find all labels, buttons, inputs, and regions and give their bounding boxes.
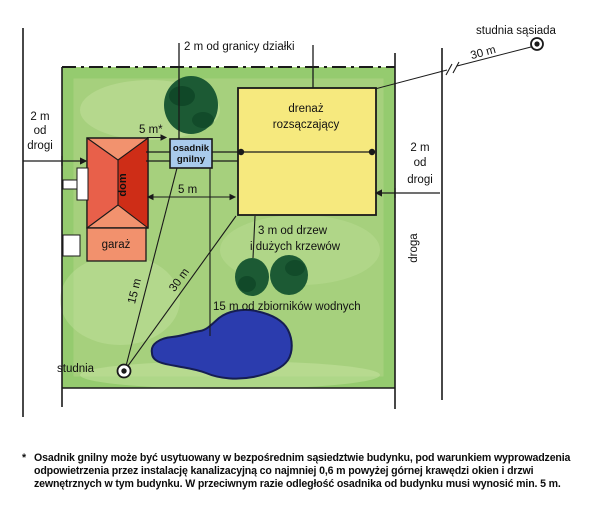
road-right-dist-line1: 2 m bbox=[410, 142, 429, 154]
tree-shade bbox=[238, 276, 256, 292]
water-dist-label: 15 m od zbiorników wodnych bbox=[213, 301, 361, 313]
road-left-dist-line2: od bbox=[34, 125, 47, 137]
septic-tank-label-line1: osadnik bbox=[173, 143, 210, 154]
line-break-ticks bbox=[446, 62, 459, 75]
footnote-line: Osadnik gnilny może być usytuowany w bez… bbox=[34, 452, 582, 465]
well-icon-center bbox=[121, 368, 126, 373]
road-left-dist-line1: 2 m bbox=[30, 111, 49, 123]
driveway bbox=[63, 235, 80, 256]
neighbor-well-icon-center bbox=[534, 41, 539, 46]
road-vertical-label: droga bbox=[408, 233, 420, 263]
neighbor-well-label: studnia sąsiada bbox=[476, 25, 557, 37]
footnote-marker: * bbox=[22, 452, 34, 490]
house-tank-dist-label: 5 m* bbox=[139, 124, 163, 136]
house: dom bbox=[87, 138, 148, 228]
plot-drawing: drenaż rozsączający 2 m od granicy dział… bbox=[0, 0, 600, 436]
road-right-dist-line2: od bbox=[414, 157, 427, 169]
septic-tank-label-line2: gnilny bbox=[177, 154, 206, 165]
road-right-dist-line3: drogi bbox=[407, 174, 433, 186]
tree-shade bbox=[169, 86, 195, 106]
grass-highlight bbox=[60, 255, 180, 345]
house-drain-dist-label: 5 m bbox=[178, 184, 197, 196]
entry-step bbox=[77, 168, 88, 200]
trees-dist-label-line2: i dużych krzewów bbox=[250, 241, 341, 253]
footnote-line: zewnętrznych w tym budynku. W przeciwnym… bbox=[34, 478, 582, 491]
entry-path bbox=[63, 180, 77, 189]
pipe-junction-dot bbox=[369, 149, 375, 155]
well-label: studnia bbox=[57, 363, 95, 375]
garage-label: garaż bbox=[102, 239, 131, 251]
footnote: * Osadnik gnilny może być usytuowany w b… bbox=[22, 452, 582, 490]
site-plan-diagram: drenaż rozsączający 2 m od granicy dział… bbox=[0, 0, 600, 508]
footnote-line: odpowietrzenia przez instalację kanaliza… bbox=[34, 465, 582, 478]
tree-shade bbox=[285, 260, 305, 276]
drain-field-label-line1: drenaż bbox=[288, 103, 323, 115]
drain-field-label-line2: rozsączający bbox=[273, 119, 340, 131]
tree-pair-right bbox=[270, 255, 308, 295]
tree-shade bbox=[192, 112, 214, 128]
road-left-dist-line3: drogi bbox=[27, 140, 53, 152]
boundary-dist-label: 2 m od granicy działki bbox=[184, 41, 295, 53]
house-label: dom bbox=[117, 173, 129, 196]
trees-dist-label-line1: 3 m od drzew bbox=[258, 225, 328, 237]
